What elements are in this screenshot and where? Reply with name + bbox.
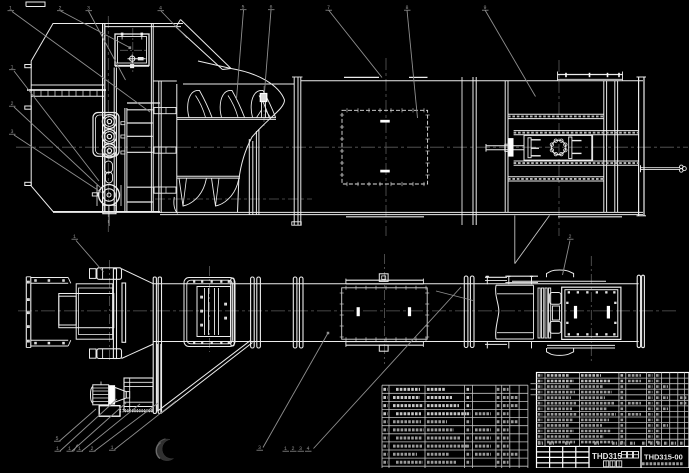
svg-text:THD315-00: THD315-00 [644, 453, 683, 462]
svg-text:THD315: THD315 [592, 452, 622, 461]
